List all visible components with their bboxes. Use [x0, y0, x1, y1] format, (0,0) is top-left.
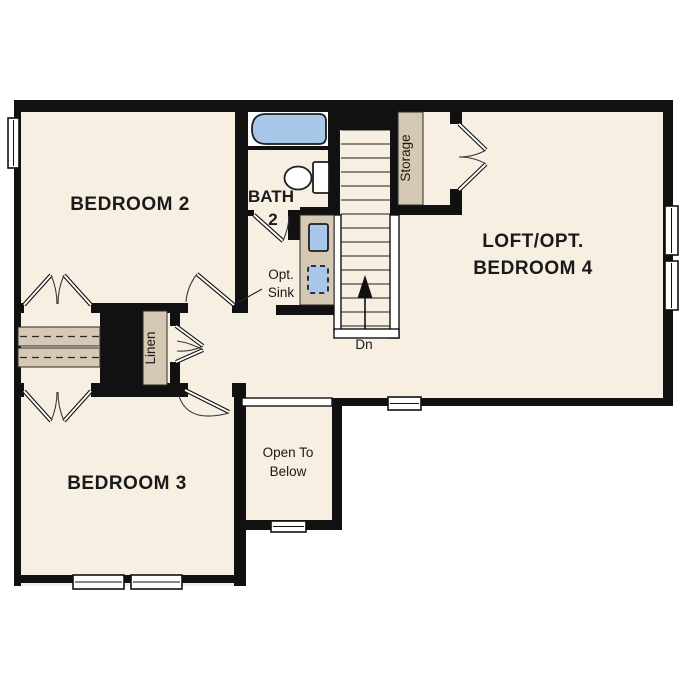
label-open-below-line1: Open To [263, 445, 314, 460]
label-bedroom3: BEDROOM 3 [67, 473, 187, 494]
stair-railing-right [390, 215, 399, 338]
wall-bedroom3-right [234, 383, 246, 586]
label-bath-line1: BATH [248, 187, 294, 206]
wall-open-below-right [332, 398, 342, 530]
label-opt-sink-line2: Sink [268, 285, 295, 300]
sink-optional [308, 266, 328, 293]
railing-open-to-below [242, 398, 332, 406]
wall-bedroom3-top-left [14, 383, 24, 397]
toilet-tank [313, 162, 329, 193]
wall-storage-right-bottom [450, 189, 462, 215]
wall-vanity-bottom [276, 305, 341, 315]
wall-bath-door-jamb [248, 210, 254, 216]
wall-bath-vanity-stub [288, 210, 300, 240]
wall-bedroom3-top-mid [91, 383, 188, 397]
label-loft-line2: BEDROOM 4 [473, 258, 593, 279]
wall-bedroom3-bottom [14, 575, 246, 583]
floor-plan: BEDROOM 2 BEDROOM 3 LOFT/OPT. BEDROOM 4 … [0, 0, 687, 687]
wall-vanity-top [300, 207, 340, 215]
wall-stair-header [328, 112, 400, 130]
wall-top [14, 100, 673, 112]
label-opt-sink-line1: Opt. [268, 267, 294, 282]
wall-bedroom2-bath [235, 112, 248, 308]
wall-loft-bottom [332, 398, 673, 406]
bathtub [252, 114, 326, 144]
label-stairs-down: Dn [355, 337, 372, 352]
label-loft-line1: LOFT/OPT. [482, 231, 584, 252]
label-linen: Linen [143, 331, 158, 364]
label-storage: Storage [398, 134, 413, 181]
floor-plan-canvas: BEDROOM 2 BEDROOM 3 LOFT/OPT. BEDROOM 4 … [0, 0, 687, 687]
wall-linen-jamb-bottom [170, 362, 180, 383]
wall-closet-core [100, 303, 143, 387]
sink-standard [309, 224, 328, 251]
wall-bedroom2-bottom-left [14, 303, 24, 313]
wall-linen-jamb-top [170, 307, 180, 326]
wall-tub-alcove [248, 146, 330, 150]
wall-storage-right-top [450, 112, 462, 124]
label-open-below-line2: Below [270, 464, 307, 479]
stair-railing-left [334, 215, 341, 332]
label-bath-line2: 2 [268, 210, 277, 229]
label-bedroom2: BEDROOM 2 [70, 194, 190, 215]
